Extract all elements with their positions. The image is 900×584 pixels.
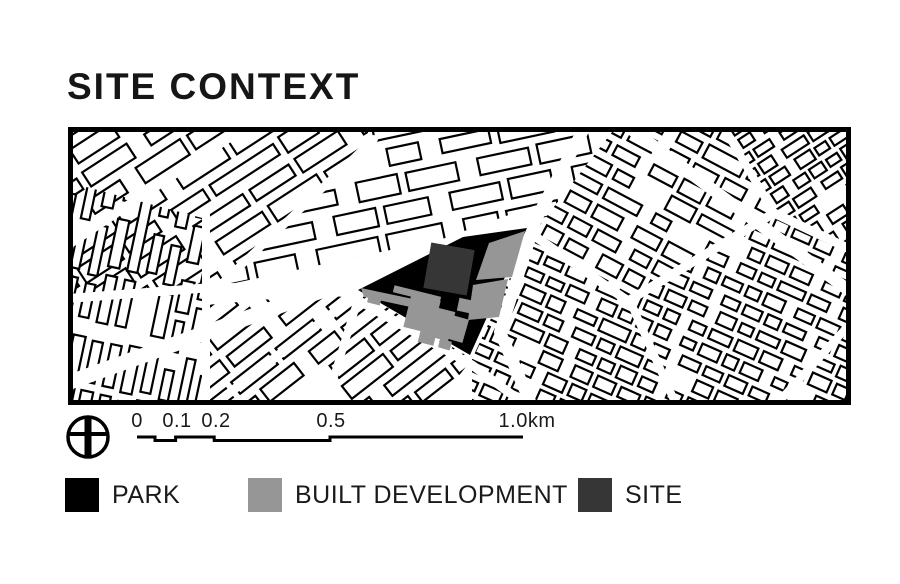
scale-label-0: 0 [131,410,143,432]
legend-label-site: SITE [625,478,683,512]
site-context-map [68,127,851,405]
scale-bar-line [137,437,523,441]
built-development-swatch [248,478,282,512]
scale-label-01: 0.1 [162,410,191,432]
legend: PARK BUILT DEVELOPMENT SITE [0,478,900,512]
legend-item-built-development: BUILT DEVELOPMENT [248,478,568,512]
park-swatch [65,478,99,512]
scale-label-02: 0.2 [201,410,230,432]
scale-label-05: 0.5 [316,410,345,432]
legend-item-park: PARK [65,478,180,512]
legend-label-park: PARK [112,478,180,512]
compass-icon [64,413,112,461]
site-swatch [578,478,612,512]
legend-label-built-development: BUILT DEVELOPMENT [295,478,568,512]
page-title: SITE CONTEXT [67,66,360,108]
legend-item-site: SITE [578,478,683,512]
site-context-sheet: SITE CONTEXT 0 0.1 0.2 0.5 1.0km PARK [0,0,900,584]
scale-label-1km: 1.0km [499,410,556,432]
scale-bar: 0 0.1 0.2 0.5 1.0km [125,406,575,452]
